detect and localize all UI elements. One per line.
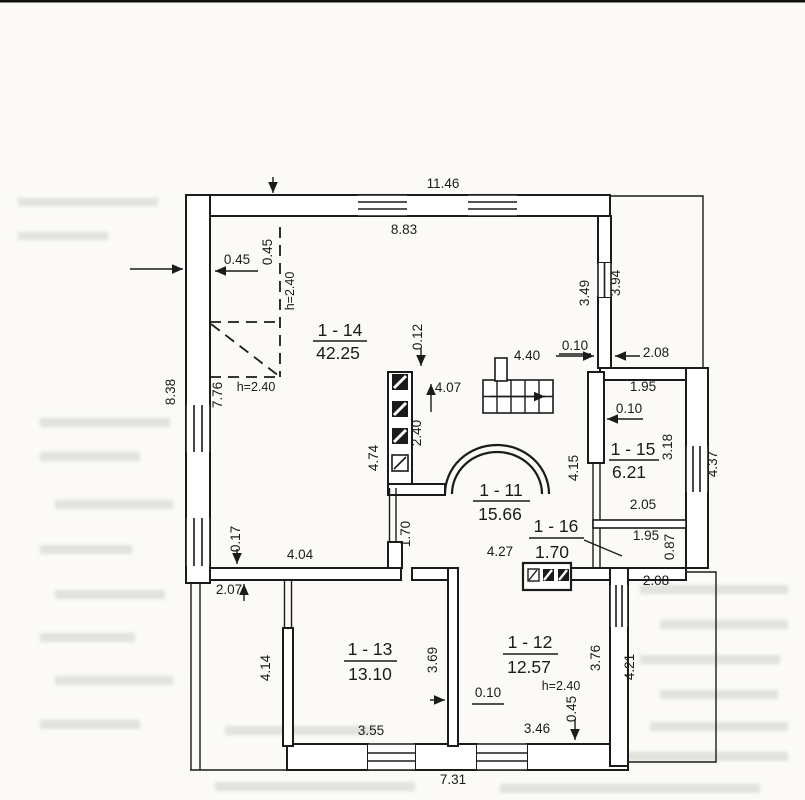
dim-hall-side: 4.15 (566, 455, 581, 481)
stairs (483, 358, 553, 413)
room-number: 1 - 13 (348, 639, 393, 659)
dim-terrace-ne-w: 2.08 (643, 345, 669, 360)
wall-south-pier-2 (415, 744, 477, 770)
room-number: 1 - 16 (534, 516, 579, 536)
wall-r13-west (283, 628, 293, 746)
room-area: 6.21 (612, 462, 646, 482)
window-north-1 (358, 195, 407, 216)
room-label-r14: 1 - 14 42.25 (313, 320, 367, 363)
dim-r16-width: 1.95 (633, 528, 659, 543)
terrace-se-outline (628, 572, 716, 762)
dim-bottom-overall: 7.31 (440, 772, 466, 787)
room-area: 13.10 (348, 664, 392, 684)
dim-r15-bottom: 2.05 (630, 497, 656, 512)
window-south-1 (368, 744, 415, 770)
leader-r16 (584, 540, 622, 556)
window-west-1 (186, 405, 210, 452)
dim-r16-height: 0.87 (662, 534, 677, 560)
window-north-2 (468, 195, 517, 216)
dim-ne-inner: 3.49 (577, 280, 592, 306)
room-label-r13: 1 - 13 13.10 (344, 639, 397, 684)
wall-hall-east-thick (588, 372, 604, 463)
dim-terrace-se-w: 2.08 (643, 573, 669, 588)
room-number: 1 - 14 (318, 320, 363, 340)
dim-r15-window: 4.37 (705, 451, 720, 477)
room-area: 1.70 (535, 542, 569, 562)
dim-r13-divider: 3.69 (425, 647, 440, 673)
dim-r12-bottom: 3.46 (524, 721, 550, 736)
dim-r12-pier: 0.45 (564, 696, 579, 722)
dim-wall-thickness: 0.17 (228, 526, 243, 552)
room-number: 1 - 11 (479, 480, 522, 500)
room-area: 15.66 (478, 504, 522, 524)
dim-gap-top: 0.10 (562, 338, 588, 353)
dim-r14-bottom: 4.04 (287, 547, 314, 562)
dim-knee-inset-v: 0.45 (260, 239, 275, 265)
dim-r15-inner: 3.18 (660, 434, 675, 460)
flue-square-2 (392, 401, 408, 417)
dim-open-area: 2.07 (216, 582, 242, 597)
wall-r15-r16-divider (593, 520, 686, 528)
scanned-page: 1 - 14 42.25 1 - 11 15.66 1 - 15 6.21 1 … (0, 0, 805, 800)
dim-terrace-se-h: 4.21 (622, 654, 637, 680)
dim-r13-side: 4.14 (258, 654, 273, 681)
terrace-ne-outline (610, 196, 703, 368)
dim-knee-h-lower: h=2.40 (237, 380, 276, 394)
dim-r14-side: 4.74 (366, 444, 381, 471)
dim-left-inner: 7.76 (210, 382, 225, 408)
dim-r15-top: 1.95 (630, 379, 656, 394)
dim-corridor: 1.70 (398, 521, 413, 547)
flue-square-3 (392, 428, 408, 444)
room-label-r15: 1 - 15 6.21 (609, 439, 659, 482)
wall-south-pier-1 (287, 744, 368, 770)
wall-r13-r12-divider (448, 568, 458, 746)
wall-ne-upper (598, 216, 611, 263)
window-west-2 (186, 518, 210, 566)
dim-r12-height-note: h=2.40 (542, 679, 581, 693)
dim-left-outer: 8.38 (163, 379, 178, 405)
wall-mid-a (210, 568, 401, 580)
room-number: 1 - 12 (508, 632, 553, 652)
dim-flue-offset: 0.12 (410, 324, 425, 350)
room-area: 12.57 (507, 657, 551, 677)
window-south-2 (477, 744, 527, 770)
room-label-r12: 1 - 12 12.57 (503, 632, 558, 677)
dim-knee-inset-h: 0.45 (224, 252, 250, 267)
dim-top-outer: 11.46 (427, 176, 460, 191)
stairs-pillar (495, 358, 507, 381)
dim-flue-wall: 2.40 (409, 420, 424, 446)
window-r12-east (610, 585, 628, 627)
room-number: 1 - 15 (611, 439, 656, 459)
flue-square-4 (392, 455, 408, 471)
floor-plan-drawing: 1 - 14 42.25 1 - 11 15.66 1 - 15 6.21 1 … (0, 0, 805, 800)
dim-knee-h-upper: h=2.40 (283, 272, 297, 311)
dim-r12-side: 3.76 (588, 645, 603, 671)
dim-r13-bottom: 3.55 (358, 723, 384, 738)
dim-top-inner: 8.83 (391, 222, 417, 237)
flue-square-1 (392, 374, 408, 390)
wall-ne-lower (598, 297, 611, 368)
dim-terrace-ne-h: 3.94 (608, 269, 623, 296)
dim-r15-wall: 0.10 (616, 401, 642, 416)
dim-r12-wall: 0.10 (475, 685, 501, 700)
room-area: 42.25 (316, 343, 360, 363)
room-label-r11: 1 - 11 15.66 (473, 480, 530, 524)
dim-hall-depth: 4.07 (435, 380, 461, 395)
scan-edge-artifact (0, 0, 805, 3)
flue-box-south (523, 563, 571, 590)
dim-hall-bottom: 4.27 (487, 544, 513, 559)
room-label-r16: 1 - 16 1.70 (529, 516, 584, 562)
dim-hall-top: 4.40 (514, 348, 540, 363)
